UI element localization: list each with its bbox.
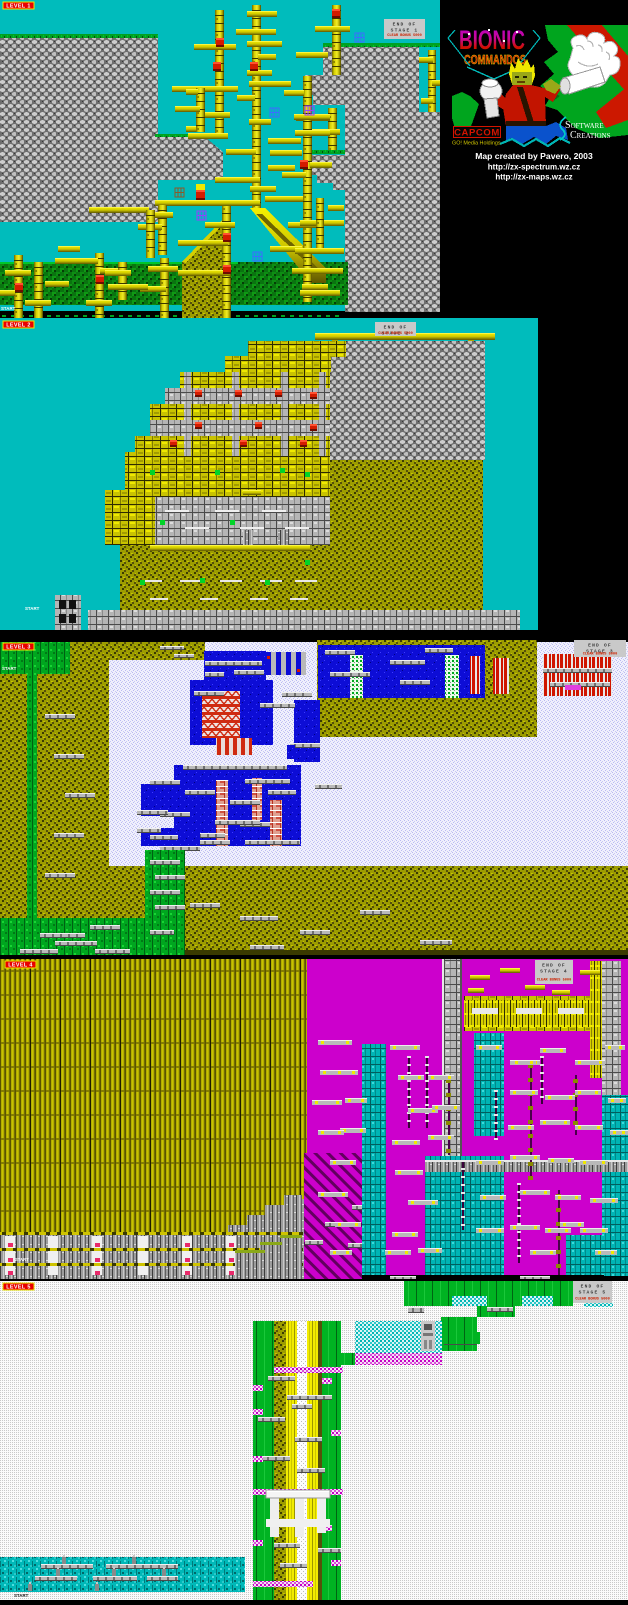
svg-text:GO! Media Holdings: GO! Media Holdings: [452, 141, 501, 147]
svg-text:END OF: END OF: [588, 643, 612, 649]
svg-text:START: START: [25, 606, 40, 611]
svg-text:START: START: [2, 666, 17, 671]
svg-text:END OF: END OF: [581, 1284, 605, 1290]
svg-text:CAPCOM: CAPCOM: [454, 128, 500, 139]
svg-text:LEVEL 1: LEVEL 1: [6, 4, 31, 10]
svg-text:START: START: [15, 1257, 29, 1262]
svg-text:LEVEL 3: LEVEL 3: [6, 645, 31, 651]
svg-text:LEVEL 4: LEVEL 4: [8, 963, 33, 969]
svg-text:STAGE 1: STAGE 1: [391, 28, 419, 34]
svg-text:END OF: END OF: [384, 325, 408, 331]
svg-text:START: START: [14, 1593, 29, 1598]
svg-text:LEVEL 5: LEVEL 5: [6, 1285, 31, 1291]
svg-text:STAGE 4: STAGE 4: [540, 969, 568, 975]
svg-text:LEVEL 2: LEVEL 2: [6, 323, 31, 329]
svg-text:CLEAR BONUS 5000: CLEAR BONUS 5000: [378, 332, 413, 336]
svg-text:START: START: [1, 306, 16, 311]
svg-text:CLEAR BONUS 5000: CLEAR BONUS 5000: [575, 1298, 610, 1302]
svg-text:CLEAR BONUS 5000: CLEAR BONUS 5000: [537, 978, 572, 982]
svg-text:STAGE 5: STAGE 5: [579, 1290, 607, 1296]
svg-text:BIONIC: BIONIC: [459, 25, 525, 55]
svg-text:CLEAR BONUS 5000: CLEAR BONUS 5000: [583, 652, 618, 656]
svg-text:http://zx-spectrum.wz.cz: http://zx-spectrum.wz.cz: [488, 163, 580, 172]
svg-text:END OF: END OF: [542, 963, 566, 969]
svg-text:CREATIONS: CREATIONS: [570, 130, 611, 141]
svg-text:http://zx-maps.wz.cz: http://zx-maps.wz.cz: [495, 173, 572, 182]
svg-text:CLEAR BONUS 5000: CLEAR BONUS 5000: [387, 34, 422, 38]
svg-text:Map created by Pavero, 2003: Map created by Pavero, 2003: [475, 151, 593, 161]
svg-text:END OF: END OF: [393, 22, 417, 28]
